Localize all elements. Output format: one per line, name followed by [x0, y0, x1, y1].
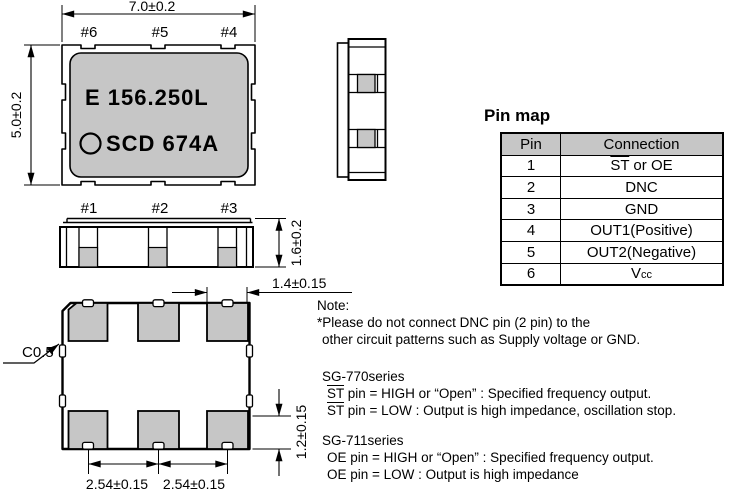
- pin-map-section: Pin map Pin Connection 1 ST or OE 2 DNC …: [484, 106, 724, 286]
- marking-code: SCD 674A: [106, 131, 219, 156]
- chamfer-label: C0.5: [22, 344, 54, 361]
- marking-frequency: E 156.250L: [85, 85, 209, 110]
- pin-map-row-3: 3 GND: [501, 198, 723, 220]
- bottom-view-pads-top: [69, 303, 249, 341]
- pin-connection: OUT1(Positive): [561, 220, 724, 242]
- dimension-thickness-label: 1.6±0.2: [288, 219, 304, 266]
- pin-map-row-4: 4 OUT1(Positive): [501, 220, 723, 242]
- dimension-height: [24, 45, 60, 185]
- pin-number: 2: [501, 177, 561, 199]
- pin-label-4: #4: [221, 24, 238, 41]
- note-dnc-warning-line1: *Please do not connect DNC pin (2 pin) t…: [317, 314, 742, 331]
- pin-number: 4: [501, 220, 561, 242]
- pin-map-header-connection: Connection: [561, 133, 724, 155]
- pin-map-title: Pin map: [484, 106, 724, 126]
- side-view-lid: [338, 43, 349, 177]
- side-view-body: [349, 39, 386, 180]
- pin-map-row-2: 2 DNC: [501, 177, 723, 199]
- pin-number: 5: [501, 241, 561, 263]
- pin-connection: GND: [561, 198, 724, 220]
- pin-map-header-pin: Pin: [501, 133, 561, 155]
- pin-label-6: #6: [81, 24, 98, 41]
- package-body: [70, 53, 248, 177]
- dimension-height-label: 5.0±0.2: [8, 91, 24, 138]
- sg711-series-title: SG-711series: [317, 432, 742, 449]
- oscillator-package-drawing: E 156.250L SCD 674A #6 #5 #4 #1 #2 #3 7.…: [0, 0, 744, 494]
- bottom-view: C0.5 1.4±0.15 1.2±0.15 2.54±0.15: [3, 275, 352, 492]
- pin-map-row-6: 6 Vcc: [501, 263, 723, 285]
- dimension-pad-height: [253, 389, 292, 476]
- notes-section: Note: *Please do not connect DNC pin (2 …: [317, 297, 742, 483]
- pin-connection: ST or OE: [561, 155, 724, 177]
- pin-map-row-5: 5 OUT2(Negative): [501, 241, 723, 263]
- sg770-st-high-note: ST pin = HIGH or “Open” : Specified freq…: [317, 385, 742, 402]
- pin-label-3: #3: [221, 200, 238, 217]
- dimension-width-label: 7.0±0.2: [129, 0, 176, 14]
- side-view: [338, 39, 386, 180]
- pin-map-table: Pin Connection 1 ST or OE 2 DNC 3 GND: [500, 132, 724, 286]
- note-title: Note:: [317, 297, 742, 314]
- pin-label-2: #2: [152, 200, 169, 217]
- sg770-st-low-note: ST pin = LOW : Output is high impedance,…: [317, 402, 742, 419]
- pin-connection: Vcc: [561, 263, 724, 285]
- pin-map-row-1: 1 ST or OE: [501, 155, 723, 177]
- pin-map-header-row: Pin Connection: [501, 133, 723, 155]
- pin-label-5: #5: [152, 24, 169, 41]
- dimension-pitch-left-label: 2.54±0.15: [86, 476, 148, 492]
- sg711-oe-high-note: OE pin = HIGH or “Open” : Specified freq…: [317, 449, 742, 466]
- pin-number: 3: [501, 198, 561, 220]
- note-dnc-warning-line2: other circuit patterns such as Supply vo…: [317, 331, 742, 348]
- sg770-series-title: SG-770series: [317, 368, 742, 385]
- dimension-thickness: [255, 219, 286, 268]
- pin-number: 6: [501, 263, 561, 285]
- sg711-oe-low-note: OE pin = LOW : Output is high impedance: [317, 466, 742, 483]
- top-view: E 156.250L SCD 674A #6 #5 #4 #1 #2 #3 7.…: [8, 0, 255, 217]
- dimension-pad-width-label: 1.4±0.15: [272, 275, 327, 291]
- dimension-pitch-right-label: 2.54±0.15: [163, 476, 225, 492]
- front-view-lid: [63, 219, 253, 223]
- front-view: 1.6±0.2: [60, 219, 304, 268]
- dimension-pitch: [89, 450, 228, 474]
- pin-connection: OUT2(Negative): [561, 241, 724, 263]
- pin-connection: DNC: [561, 177, 724, 199]
- pin-number: 1: [501, 155, 561, 177]
- pin-label-1: #1: [81, 200, 98, 217]
- dimension-pad-height-label: 1.2±0.15: [293, 405, 309, 460]
